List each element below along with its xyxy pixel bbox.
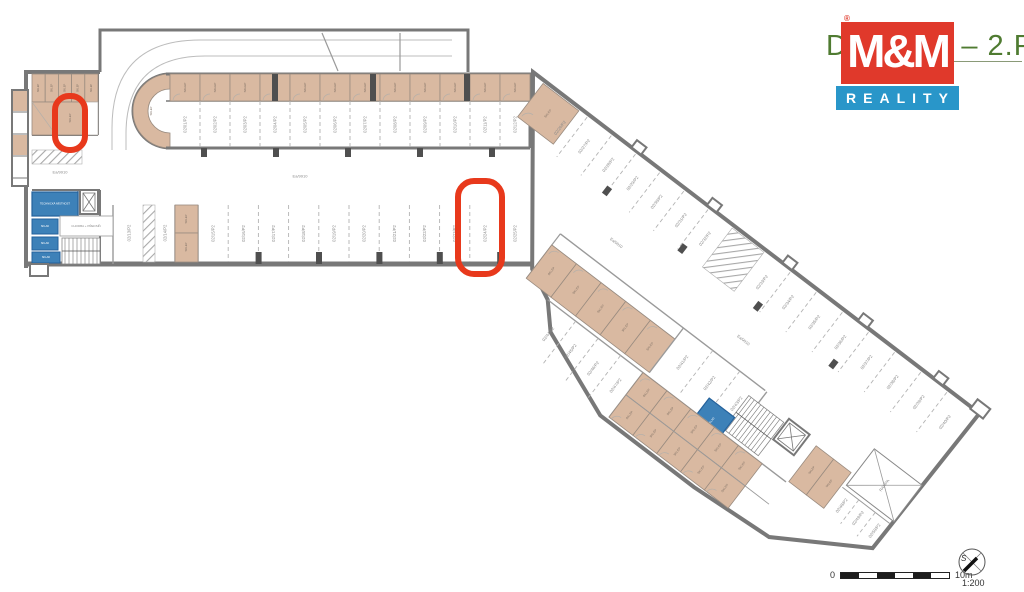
svg-text:SKLAD: SKLAD <box>42 256 50 259</box>
logo-mm-mark: M&M <box>841 22 954 84</box>
svg-text:SKLEP: SKLEP <box>68 113 72 122</box>
svg-text:02/22/P2: 02/22/P2 <box>422 224 427 241</box>
svg-text:02/24/P2: 02/24/P2 <box>482 224 487 241</box>
svg-text:02/16/P2: 02/16/P2 <box>241 224 246 241</box>
svg-text:02/15/P2: 02/15/P2 <box>211 224 216 241</box>
scale-ratio-label: 1:200 <box>962 578 985 588</box>
svg-text:SKLEP: SKLEP <box>184 214 188 223</box>
svg-text:SKLEP: SKLEP <box>184 242 188 251</box>
svg-text:SKLEP: SKLEP <box>393 83 397 93</box>
scale-bar: 0 10m <box>830 570 973 580</box>
svg-text:SKLEP: SKLEP <box>149 106 153 115</box>
svg-text:02/14/P2: 02/14/P2 <box>163 224 168 241</box>
svg-text:SKLEP: SKLEP <box>513 83 517 93</box>
svg-text:02/13/P2: 02/13/P2 <box>127 224 132 241</box>
svg-text:02/25/P2: 02/25/P2 <box>513 224 518 241</box>
svg-text:SKLEP: SKLEP <box>303 83 307 93</box>
svg-text:02/07/P2: 02/07/P2 <box>363 115 368 132</box>
svg-text:02/04/P2: 02/04/P2 <box>273 115 278 132</box>
svg-text:SKLEP: SKLEP <box>363 83 367 93</box>
svg-text:02/06/P2: 02/06/P2 <box>333 115 338 132</box>
svg-text:02/19/P2: 02/19/P2 <box>331 224 336 241</box>
svg-text:02/21/P2: 02/21/P2 <box>392 224 397 241</box>
svg-text:SKLEP: SKLEP <box>49 84 53 93</box>
svg-text:TECHNICKÁ MÍSTNOST: TECHNICKÁ MÍSTNOST <box>40 202 71 206</box>
svg-text:SKLEP: SKLEP <box>333 83 337 93</box>
svg-text:SKLEP: SKLEP <box>76 84 80 93</box>
floorplan-page: SKLEPSKLEPSKLEPSKLEPSKLEPSKLEPEa/9910Ea/… <box>0 0 1024 592</box>
svg-text:SKLEP: SKLEP <box>89 84 93 93</box>
logo-reality-banner: REALITY <box>836 86 959 110</box>
svg-text:Ea/9910: Ea/9910 <box>53 170 69 175</box>
svg-text:SKLEP: SKLEP <box>423 83 427 93</box>
svg-text:SKLEP: SKLEP <box>483 83 487 93</box>
svg-text:02/08/P2: 02/08/P2 <box>393 115 398 132</box>
svg-text:Ea/9910: Ea/9910 <box>293 174 309 179</box>
svg-text:SKLEP: SKLEP <box>36 84 40 93</box>
wing-b: SKLEP02/26/P202/27/P202/28/P202/29/P202/… <box>392 64 990 592</box>
svg-text:02/18/P2: 02/18/P2 <box>301 224 306 241</box>
svg-text:02/03/P2: 02/03/P2 <box>243 115 248 132</box>
svg-text:02/01/P2: 02/01/P2 <box>183 115 188 132</box>
scale-zero-label: 0 <box>830 570 835 580</box>
svg-text:02/11/P2: 02/11/P2 <box>483 116 488 133</box>
svg-text:02/12/P2: 02/12/P2 <box>513 115 518 132</box>
svg-text:02/09/P2: 02/09/P2 <box>423 115 428 132</box>
svg-text:02/05/P2: 02/05/P2 <box>303 115 308 132</box>
svg-text:SKLEP: SKLEP <box>453 83 457 93</box>
svg-text:SKLAD: SKLAD <box>41 225 49 228</box>
svg-text:CHODBA + PŘEDSÍŇ: CHODBA + PŘEDSÍŇ <box>71 223 100 228</box>
svg-text:SKLEP: SKLEP <box>243 83 247 93</box>
svg-text:SKLEP: SKLEP <box>213 83 217 93</box>
north-letter: S <box>961 554 966 563</box>
svg-text:02/02/P2: 02/02/P2 <box>213 115 218 132</box>
svg-text:SKLEP: SKLEP <box>183 83 187 93</box>
scale-bar-graphic <box>840 572 950 579</box>
svg-text:SKLAD: SKLAD <box>41 242 49 245</box>
svg-text:02/10/P2: 02/10/P2 <box>453 115 458 132</box>
svg-text:02/20/P2: 02/20/P2 <box>362 224 367 241</box>
highlight-oval-2 <box>458 181 502 274</box>
svg-text:SKLEP: SKLEP <box>63 84 67 93</box>
highlight-markers <box>55 96 502 274</box>
svg-text:02/17/P2: 02/17/P2 <box>271 224 276 241</box>
title-underline <box>948 61 1022 62</box>
